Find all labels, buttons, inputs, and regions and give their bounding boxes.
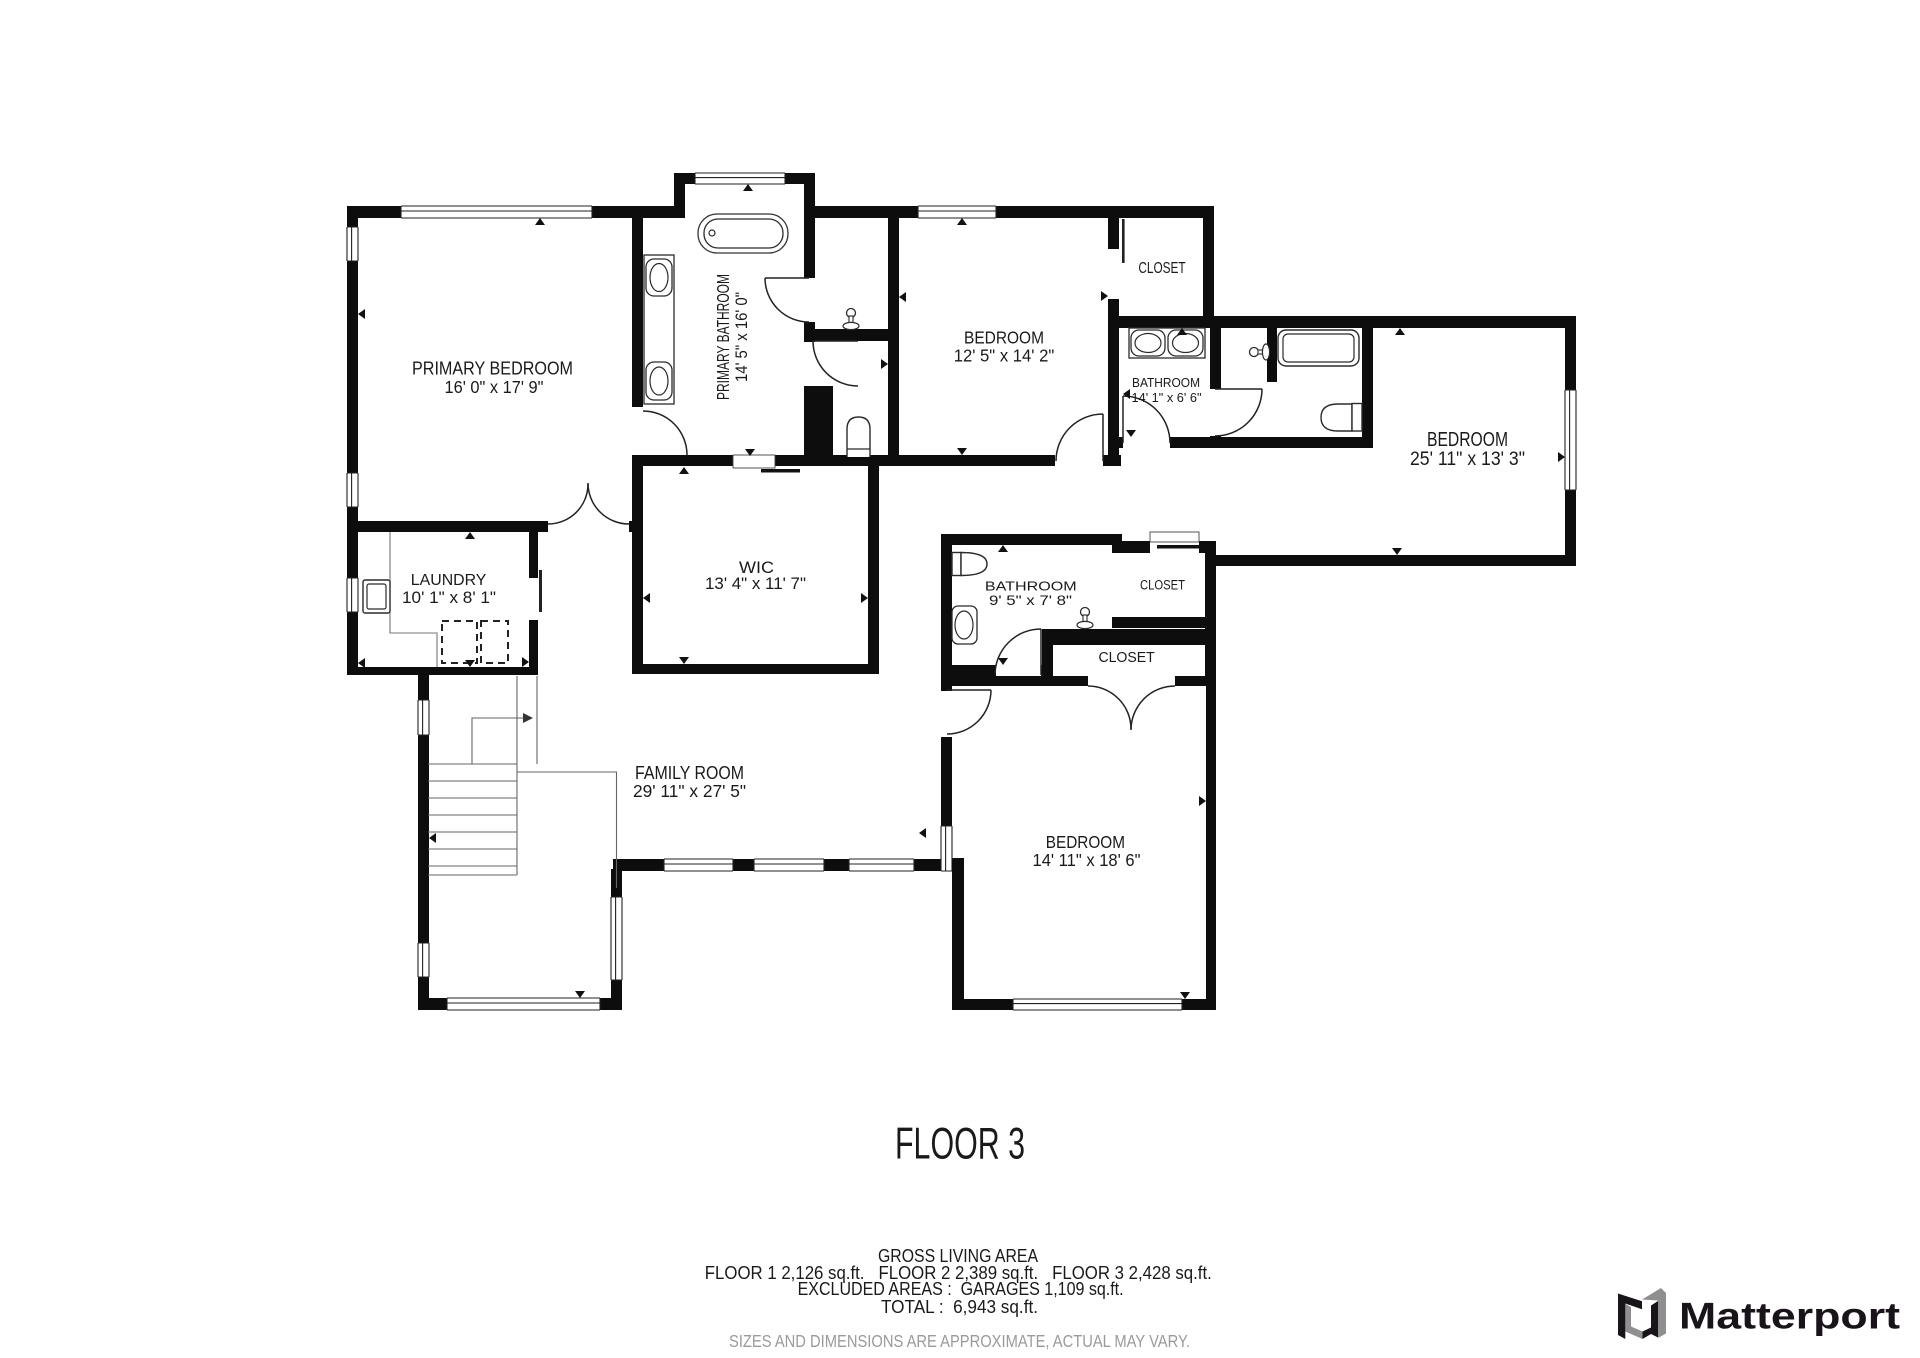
- svg-text:10' 1" x 8' 1": 10' 1" x 8' 1": [402, 588, 496, 607]
- svg-text:9' 5" x 7' 8": 9' 5" x 7' 8": [989, 593, 1072, 608]
- svg-text:BEDROOM: BEDROOM: [964, 328, 1044, 348]
- svg-text:13' 4" x 11' 7": 13' 4" x 11' 7": [705, 575, 806, 593]
- svg-text:CLOSET: CLOSET: [1140, 578, 1185, 593]
- svg-text:12' 5" x 14' 2": 12' 5" x 14' 2": [954, 346, 1055, 366]
- svg-text:LAUNDRY: LAUNDRY: [411, 572, 487, 589]
- svg-text:Matterport: Matterport: [1679, 1295, 1901, 1337]
- svg-text:BEDROOM: BEDROOM: [1046, 832, 1125, 852]
- svg-text:PRIMARY BATHROOM: PRIMARY BATHROOM: [713, 274, 733, 400]
- svg-text:CLOSET: CLOSET: [1138, 260, 1185, 277]
- svg-text:29' 11" x 27' 5": 29' 11" x 27' 5": [633, 781, 746, 801]
- svg-text:16' 0" x 17' 9": 16' 0" x 17' 9": [445, 377, 544, 397]
- svg-text:25' 11" x 13' 3": 25' 11" x 13' 3": [1410, 448, 1525, 470]
- svg-text:EXCLUDED AREAS : GARAGES 1,10: EXCLUDED AREAS : GARAGES 1,109 sq.ft.: [798, 1279, 1124, 1299]
- svg-text:SIZES AND DIMENSIONS ARE APPRO: SIZES AND DIMENSIONS ARE APPROXIMATE, AC…: [729, 1331, 1190, 1351]
- svg-text:14' 5" x 16' 0": 14' 5" x 16' 0": [732, 292, 751, 382]
- svg-text:BATHROOM: BATHROOM: [985, 579, 1077, 594]
- svg-text:FAMILY ROOM: FAMILY ROOM: [635, 763, 744, 783]
- svg-text:TOTAL : 6,943 sq.ft.: TOTAL : 6,943 sq.ft.: [881, 1297, 1038, 1317]
- svg-text:14' 11" x 18' 6": 14' 11" x 18' 6": [1033, 850, 1141, 870]
- svg-text:PRIMARY BEDROOM: PRIMARY BEDROOM: [412, 358, 573, 379]
- svg-text:CLOSET: CLOSET: [1098, 650, 1154, 666]
- svg-text:FLOOR 3: FLOOR 3: [895, 1120, 1025, 1169]
- svg-text:14' 1" x 6' 6": 14' 1" x 6' 6": [1132, 390, 1202, 405]
- svg-text:BATHROOM: BATHROOM: [1132, 375, 1200, 390]
